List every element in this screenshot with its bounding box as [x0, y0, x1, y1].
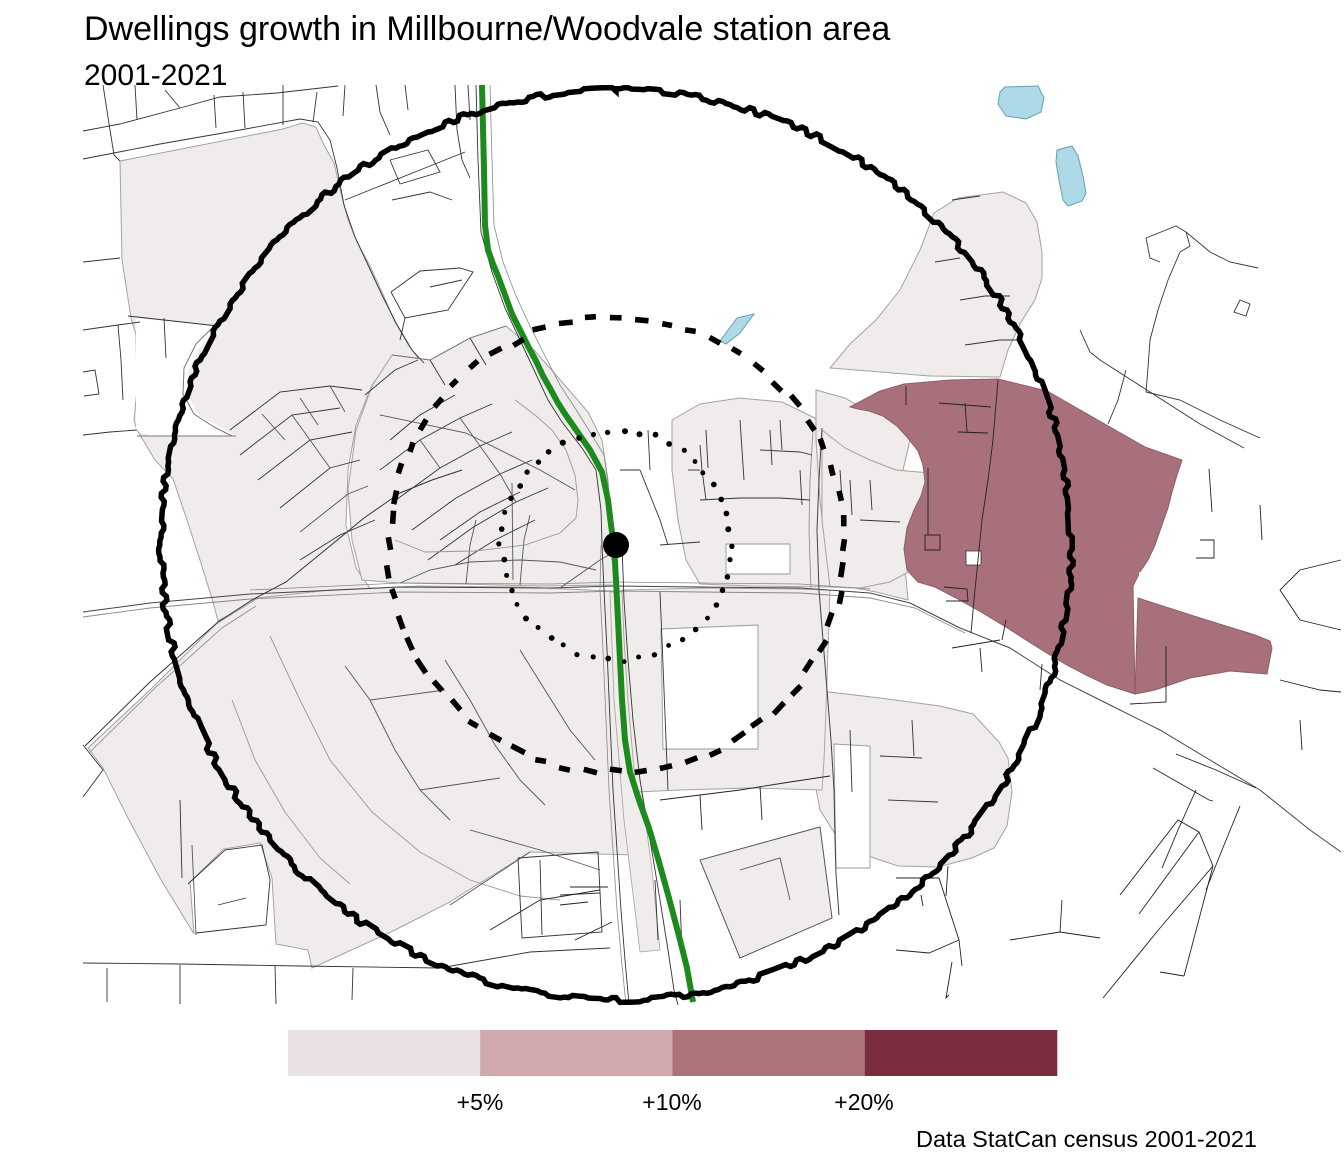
svg-text:+5%: +5% — [457, 1089, 504, 1115]
svg-text:+20%: +20% — [834, 1089, 893, 1115]
svg-text:+10%: +10% — [642, 1089, 701, 1115]
svg-text:Data StatCan census 2001-2021: Data StatCan census 2001-2021 — [916, 1126, 1257, 1152]
svg-text:Dwellings growth in Millbourne: Dwellings growth in Millbourne/Woodvale … — [84, 10, 890, 48]
svg-text:2001-2021: 2001-2021 — [84, 59, 227, 92]
